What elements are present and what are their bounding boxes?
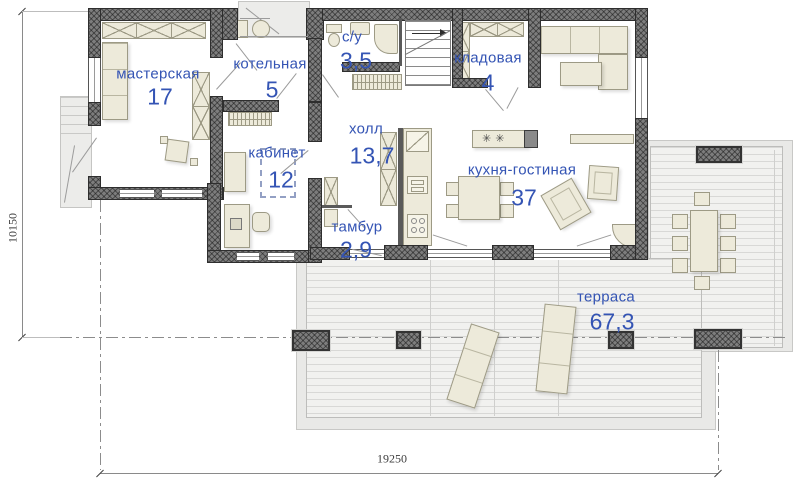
room-name-su: с/у xyxy=(342,29,362,46)
dimension-value-left: 10150 xyxy=(6,213,21,243)
burner xyxy=(419,227,425,233)
hob-burners-icon: ✳✳ xyxy=(482,132,508,145)
office-south-wall xyxy=(207,250,322,263)
stair-direction-line xyxy=(412,33,440,34)
sofa-seat xyxy=(540,26,628,54)
room-area-terrasa: 67,3 xyxy=(590,309,635,336)
workshop-table xyxy=(165,139,190,164)
window-south-office xyxy=(268,252,294,261)
office-chair xyxy=(252,212,270,232)
room-area-kladovaya: 4 xyxy=(482,70,495,97)
room-name-holl: холл xyxy=(349,121,383,138)
room-name-kabinet: кабинет xyxy=(248,145,305,162)
extension-line xyxy=(22,337,60,338)
south-wall-pier xyxy=(492,245,534,260)
window-south-workshop xyxy=(120,189,154,198)
outdoor-dining-table xyxy=(690,210,718,272)
coffee-table xyxy=(560,62,602,86)
dimension-line-bottom xyxy=(100,473,718,474)
partition-office-hall xyxy=(308,102,322,142)
wardrobe-row xyxy=(102,22,206,39)
armchair-seat xyxy=(550,187,582,221)
deck-joint xyxy=(774,150,775,346)
vestibule-cabinet xyxy=(324,177,338,207)
overhang-dashdot-line xyxy=(60,337,788,338)
partition-boiler-bath xyxy=(308,38,322,102)
hall-closet xyxy=(352,74,402,90)
room-area-masterskaya: 17 xyxy=(147,84,173,111)
extension-line xyxy=(22,11,88,12)
toilet-bowl xyxy=(328,33,340,47)
west-wall xyxy=(88,8,101,58)
outdoor-chair xyxy=(694,192,710,206)
east-wall xyxy=(635,8,648,58)
north-wall-west xyxy=(88,8,224,21)
outdoor-chair xyxy=(672,214,688,229)
east-wall xyxy=(635,118,648,260)
terrace-deck-main xyxy=(306,258,702,418)
window-east xyxy=(635,58,648,118)
stove xyxy=(407,214,428,238)
sink-bowl xyxy=(411,187,424,192)
room-name-kladovaya: кладовая xyxy=(454,50,522,67)
room-area-su: 3,5 xyxy=(340,48,372,75)
outdoor-chair xyxy=(720,258,736,273)
coat-closet xyxy=(228,112,272,126)
room-area-kuhnya: 37 xyxy=(511,185,537,212)
office-sofa xyxy=(224,152,246,192)
room-name-kotelnaya: котельная xyxy=(233,56,306,73)
south-wall-pier xyxy=(384,245,428,260)
stair-west-wall xyxy=(399,18,402,66)
porch-step-line xyxy=(240,18,270,19)
stair-east-wall xyxy=(452,8,463,88)
south-wall-west-block xyxy=(88,187,224,200)
room-area-holl: 13,7 xyxy=(350,143,395,170)
room-area-kabinet: 12 xyxy=(268,167,294,194)
fridge-icon xyxy=(406,131,429,152)
deck-joint xyxy=(430,260,431,416)
room-name-kuhnya: кухня-гостиная xyxy=(468,162,576,179)
island-end-cabinet xyxy=(524,130,538,148)
outdoor-chair xyxy=(720,214,736,229)
room-name-tambur: тамбур xyxy=(332,219,383,236)
kitchen-sink xyxy=(407,176,428,194)
outdoor-chair xyxy=(672,236,688,251)
north-wall-main xyxy=(322,8,648,21)
terrace-pier xyxy=(694,329,742,349)
steps-treads xyxy=(61,97,91,139)
tv-console xyxy=(570,134,634,144)
terrace-pier xyxy=(292,330,330,351)
left-extension-line xyxy=(100,200,101,470)
burner xyxy=(419,218,425,224)
window-south-workshop xyxy=(162,189,202,198)
outdoor-chair xyxy=(720,236,736,251)
dimension-line-left xyxy=(22,11,23,337)
dining-table xyxy=(458,176,500,220)
partition-hall-kitchen xyxy=(398,128,403,245)
outdoor-chair xyxy=(694,276,710,290)
sofa-chaise xyxy=(598,54,628,90)
burner xyxy=(411,218,417,224)
burner xyxy=(411,227,417,233)
room-name-terrasa: терраса xyxy=(577,289,635,306)
floor-plan-canvas: ✳✳ xyxy=(0,0,800,490)
stool xyxy=(160,136,168,144)
partition-workshop xyxy=(210,8,223,58)
sliding-glass-door xyxy=(428,249,492,258)
dimension-value-bottom: 19250 xyxy=(377,452,407,467)
window-south-office xyxy=(237,252,259,261)
terrace-pier xyxy=(396,331,421,349)
entrance-porch xyxy=(238,1,310,38)
storage-shelf-top xyxy=(470,22,524,37)
terrace-pier xyxy=(696,146,742,163)
stool xyxy=(190,158,198,166)
room-area-tambur: 2,9 xyxy=(340,237,372,264)
porch-left-pier xyxy=(222,8,238,40)
room-name-masterskaya: мастерская xyxy=(116,66,199,83)
room-area-kotelnaya: 5 xyxy=(266,77,279,104)
ramp-line xyxy=(64,145,75,202)
west-wall xyxy=(88,102,101,126)
armchair xyxy=(587,165,619,201)
armchair-seat xyxy=(593,171,612,194)
monitor xyxy=(230,218,242,230)
right-extension-line xyxy=(718,350,719,470)
toilet-tank xyxy=(326,24,342,33)
outdoor-chair xyxy=(672,258,688,273)
storage-east-wall xyxy=(528,8,541,88)
window-west xyxy=(88,58,101,102)
vestibule-wall xyxy=(322,205,352,208)
sink-bowl xyxy=(411,180,424,185)
sliding-glass-door xyxy=(534,249,610,258)
entrance-door-sill xyxy=(240,36,308,37)
